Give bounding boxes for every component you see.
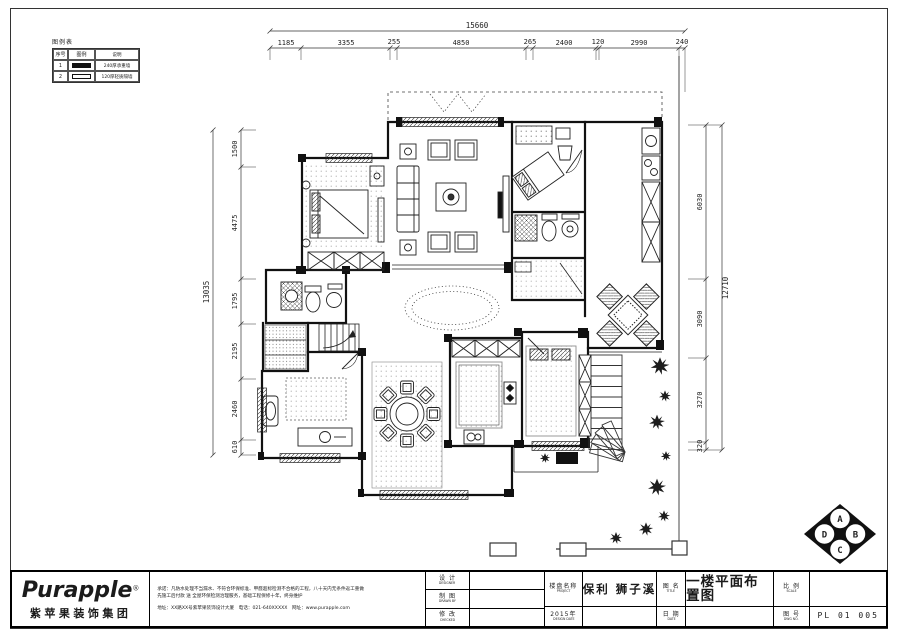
brand-name: Purapple	[22, 578, 133, 603]
company-logo: Purapple® 紫苹果装饰集团	[12, 572, 150, 626]
bathroom-b-fixtures	[515, 214, 579, 241]
svg-text:265: 265	[524, 38, 537, 46]
project-date-value	[583, 607, 657, 626]
company-promise: 承诺：凡防水处理不当漏水、不符合环保标准、甲醛超标检测不合格的工程，八十天内无条…	[150, 572, 425, 626]
scale-value	[810, 572, 886, 607]
bathroom-a-fixtures	[281, 282, 342, 312]
legend-title: 图例表	[52, 37, 140, 46]
sheet-frame	[11, 9, 888, 629]
svg-text:255: 255	[388, 38, 401, 46]
legend-row: 1 240厚承重墙	[53, 60, 139, 71]
drawing-number: PL 01 005	[818, 612, 879, 620]
project-name-col: 保利 狮子溪	[583, 572, 658, 626]
svg-text:3090: 3090	[696, 311, 704, 328]
project-name: 保利 狮子溪	[583, 583, 657, 595]
svg-text:4475: 4475	[231, 215, 239, 232]
kitchen-cabinets	[452, 340, 520, 357]
designer-value	[470, 572, 544, 590]
dining-room-furniture	[372, 362, 442, 488]
bedroom-a-furniture	[302, 163, 385, 270]
svg-text:2400: 2400	[556, 39, 573, 47]
drawn-value	[470, 590, 544, 608]
svg-text:320: 320	[696, 440, 704, 453]
eave-outline	[388, 92, 662, 120]
drawing-sheet: 15660 1185 3355 255 4850 265 2400 120 29…	[0, 0, 898, 637]
svg-text:2460: 2460	[231, 401, 239, 418]
svg-text:3355: 3355	[338, 39, 355, 47]
title-labels: 图 名TITLE 日 期DATE	[657, 572, 686, 626]
garden-steps	[589, 355, 625, 462]
svg-text:C: C	[837, 546, 842, 556]
legend-table: 图例表 序号 图例 说明 1 240厚承重墙 2 120厚轻质隔墙	[52, 37, 140, 83]
drawing-title-col: 一楼平面布置图	[686, 572, 773, 626]
legend-header-desc: 说明	[95, 49, 139, 60]
legend-header-symbol: 图例	[68, 49, 95, 60]
terrace-cabinets	[642, 128, 660, 262]
garden-column	[579, 355, 591, 436]
tv	[498, 192, 502, 218]
svg-text:15660: 15660	[466, 21, 489, 30]
svg-text:2195: 2195	[231, 343, 239, 360]
compass-symbol: A B C D	[804, 504, 876, 564]
dimension-chain-top: 15660 1185 3355 255 4850 265 2400 120 29…	[268, 21, 689, 92]
promise-line-2: 先施工后付款 送 全屋环保检测治理服务，基础工程保修十年，终身维护	[157, 594, 417, 601]
legend-row: 2 120厚轻质隔墙	[53, 71, 139, 82]
svg-text:12710: 12710	[721, 276, 730, 299]
staff-labels: 设 计DESIGNER 制 图DRAWN BY 修 改CHECKED	[426, 572, 471, 626]
hall-rug	[405, 286, 499, 330]
company-address: 地址：XX路XX号紫苹果装饰设计大厦 电话：021-640XXXXX 网址：ww…	[157, 605, 417, 611]
cloak-room	[265, 325, 306, 369]
project-labels: 楼盘名称PROJECT 2015年DESIGN DATE	[545, 572, 583, 626]
staff-values	[470, 572, 545, 626]
stairs	[319, 324, 359, 351]
svg-text:120: 120	[592, 38, 605, 46]
svg-text:13035: 13035	[202, 281, 211, 304]
legend-symbol-solid-wall	[72, 63, 91, 68]
svg-text:B: B	[853, 531, 859, 541]
legend-header-no: 序号	[53, 49, 68, 60]
svg-text:4850: 4850	[453, 39, 470, 47]
dimension-chain-right: 6030 3090 3270 320 12710	[688, 123, 730, 453]
tv-cabinet	[503, 176, 509, 232]
svg-text:2990: 2990	[631, 39, 648, 47]
svg-text:A: A	[837, 515, 843, 525]
bedroom-c-furniture	[526, 338, 576, 436]
storage-room	[514, 260, 584, 298]
living-room-furniture	[397, 140, 509, 255]
kitchen-furniture	[452, 340, 520, 444]
svg-text:1795: 1795	[231, 293, 239, 310]
svg-text:610: 610	[231, 441, 239, 454]
svg-text:1185: 1185	[278, 39, 295, 47]
checked-value	[470, 609, 544, 626]
svg-text:3270: 3270	[696, 392, 704, 409]
promise-line-1: 承诺：凡防水处理不当漏水、不符合环保标准、甲醛超标检测不合格的工程，八十天内无条…	[157, 587, 417, 594]
legend-symbol-partition-wall	[72, 74, 91, 79]
drawing-date-value	[686, 607, 772, 626]
brand-name-cn: 紫苹果装饰集团	[30, 605, 132, 621]
svg-text:1500: 1500	[231, 141, 239, 158]
svg-text:240: 240	[676, 38, 689, 46]
registered-mark: ®	[132, 584, 139, 592]
floor-plan-svg: 15660 1185 3355 255 4850 265 2400 120 29…	[0, 0, 898, 637]
dimension-chain-left: 13035 1500 4475 1795 2195 2460 610	[202, 128, 256, 458]
svg-text:6030: 6030	[696, 194, 704, 211]
drawing-number-col: PL 01 005	[810, 572, 886, 626]
scale-labels: 比 例SCALE 图 号DWG NO.	[774, 572, 811, 626]
title-block: Purapple® 紫苹果装饰集团 承诺：凡防水处理不当漏水、不符合环保标准、甲…	[10, 570, 888, 628]
dining-table	[390, 397, 424, 431]
svg-text:D: D	[822, 531, 828, 541]
bedroom-b-furniture	[512, 126, 582, 200]
drawing-title: 一楼平面布置图	[686, 575, 772, 603]
